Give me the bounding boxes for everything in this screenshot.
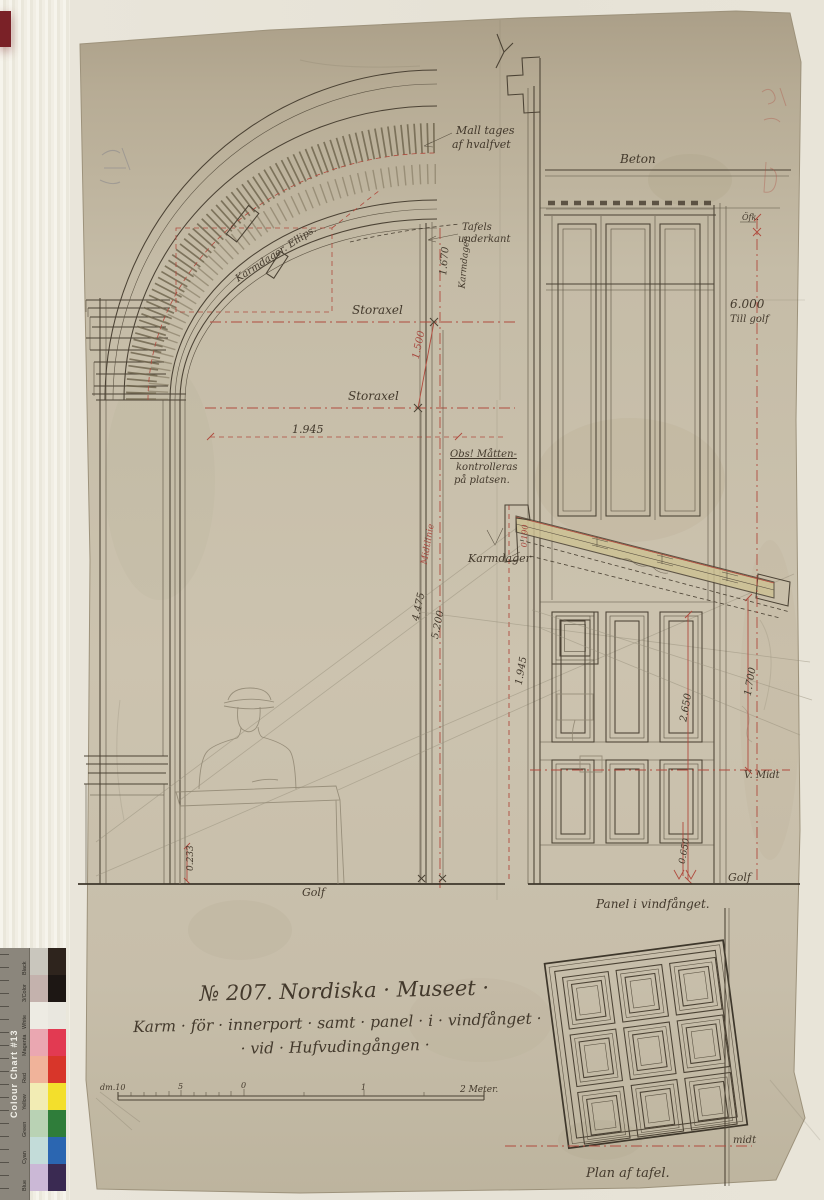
label-tafels-underkant: Tafels	[462, 222, 492, 233]
label-plan-midt: midt	[733, 1135, 757, 1146]
label-storaxel-upper: Storaxel	[352, 303, 403, 317]
label-golf-right: Golf	[728, 871, 753, 884]
scale-tick-1: 1	[361, 1083, 366, 1092]
note-obs-2: kontrolleras	[456, 462, 518, 473]
caption-panel-i-vindfanget: Panel i vindfånget.	[595, 896, 710, 911]
dim-6000: 6.000	[730, 297, 765, 311]
note-obs-1: Obs! Måtten-	[450, 448, 518, 460]
label-karmdager-mid: Karmdager	[467, 552, 532, 565]
scale-tick-5: 5	[178, 1082, 183, 1091]
scale-tick-0: 0	[241, 1081, 246, 1090]
dim-1945-width: 1.945	[292, 423, 324, 436]
dim-0233: 0.233	[186, 845, 196, 871]
scale-right-label: 2 Meter.	[459, 1085, 498, 1095]
scale-left-label: dm.10	[100, 1083, 125, 1092]
label-golf-left: Golf	[302, 886, 327, 899]
label-mall-tages-2: af hvalfvet	[452, 138, 511, 151]
drawing-sheet: Mall tages af hvalfvet Tafels underkant …	[0, 0, 824, 1200]
archival-photo: Colour Chart #13 Black 3/Color White Mag…	[0, 0, 824, 1200]
dim-6000-till-golf: Till golf	[730, 314, 771, 325]
label-beton: Beton	[619, 152, 656, 166]
note-obs-3: på platsen.	[454, 474, 510, 486]
dim-0190: 0.190	[520, 524, 530, 547]
label-mall-tages: Mall tages	[455, 124, 515, 137]
caption-plan-af-tafel: Plan af tafel.	[585, 1166, 670, 1181]
label-v-midt: V. Midt	[744, 770, 781, 781]
label-storaxel-lower: Storaxel	[348, 389, 399, 403]
label-ofk: Öfk.	[742, 213, 759, 222]
